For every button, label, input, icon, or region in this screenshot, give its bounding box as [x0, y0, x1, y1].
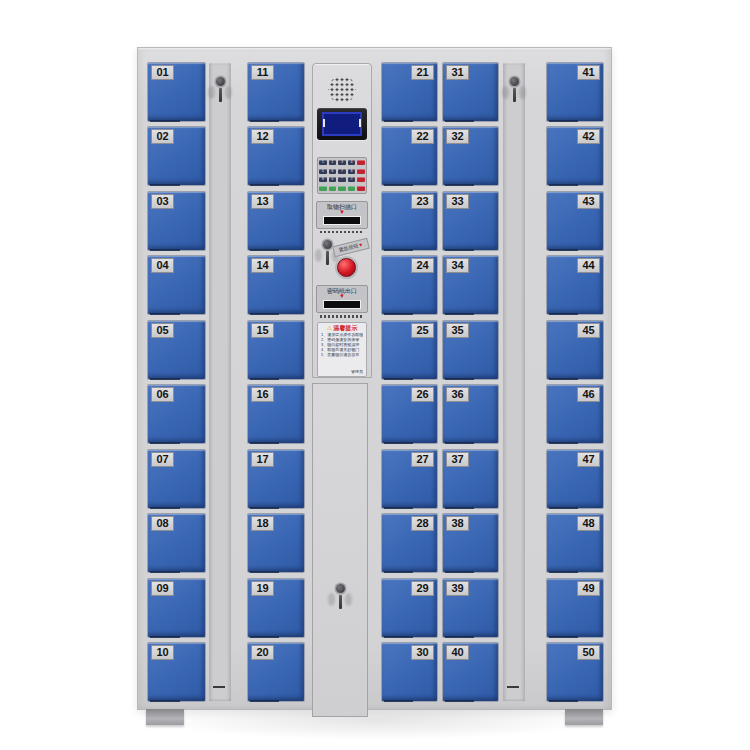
locker-door-42[interactable]: 42	[547, 127, 603, 185]
locker-door-24[interactable]: 24	[382, 256, 437, 314]
keypad-key[interactable]: 5	[319, 169, 327, 174]
control-panel: 1234567890*# 取物扫描口 ▼ 紧急按钮▼ 密码纸出口 ▼	[312, 63, 372, 378]
door-number-plate: 40	[446, 645, 469, 660]
door-number-plate: 49	[577, 581, 600, 596]
door-number-plate: 06	[151, 387, 174, 402]
keypad-key[interactable]: 3	[338, 160, 346, 165]
strip-vent-slot	[507, 686, 519, 688]
door-number-plate: 48	[577, 516, 600, 531]
door-number-plate: 20	[251, 645, 274, 660]
keypad-key[interactable]: 1	[319, 160, 327, 165]
door-number-plate: 21	[411, 65, 434, 80]
locker-door-34[interactable]: 34	[443, 256, 498, 314]
locker-door-40[interactable]: 40	[443, 643, 498, 701]
door-number-plate: 19	[251, 581, 274, 596]
door-number-plate: 05	[151, 323, 174, 338]
emergency-button-label: 紧急按钮▼	[332, 238, 370, 257]
keypad-key[interactable]: 4	[348, 160, 356, 165]
door-number-plate: 14	[251, 258, 274, 273]
locker-door-13[interactable]: 13	[248, 192, 304, 250]
locker-door-07[interactable]: 07	[148, 450, 205, 508]
door-number-plate: 47	[577, 452, 600, 467]
speaker-icon	[328, 76, 356, 103]
notice-line: 5、贵重物品请勿存放	[321, 352, 363, 357]
locker-door-12[interactable]: 12	[248, 127, 304, 185]
lcd-display	[317, 108, 367, 140]
locker-column-1: 01020304050607080910	[148, 63, 205, 701]
locker-door-17[interactable]: 17	[248, 450, 304, 508]
keypad-function-key[interactable]	[357, 160, 365, 165]
locker-door-25[interactable]: 25	[382, 321, 437, 379]
keypad-key[interactable]: 6	[329, 169, 337, 174]
locker-cabinet: 01020304050607080910 1112131415161718192…	[137, 47, 612, 710]
keypad-key[interactable]: *	[338, 177, 346, 182]
password-slot-panel: 密码纸出口 ▼	[316, 285, 368, 313]
keypad-key[interactable]	[319, 186, 327, 191]
locker-door-47[interactable]: 47	[547, 450, 603, 508]
locker-door-39[interactable]: 39	[443, 579, 498, 637]
door-number-plate: 25	[411, 323, 434, 338]
lower-door-keyhole-with-key-icon[interactable]	[332, 584, 348, 616]
warning-triangle-icon: ⚠	[327, 325, 332, 332]
door-number-plate: 03	[151, 194, 174, 209]
locker-door-29[interactable]: 29	[382, 579, 437, 637]
notice-label: ⚠ 温馨提示 1、请按提示操作存取物品2、密码条请妥善保管3、物品超时将被清理4…	[317, 322, 367, 377]
keypad-key[interactable]: 7	[338, 169, 346, 174]
notice-header: ⚠ 温馨提示	[321, 325, 363, 332]
locker-door-28[interactable]: 28	[382, 514, 437, 572]
keypad-key[interactable]: 8	[348, 169, 356, 174]
locker-door-08[interactable]: 08	[148, 514, 205, 572]
locker-door-05[interactable]: 05	[148, 321, 205, 379]
door-number-plate: 22	[411, 129, 434, 144]
locker-door-14[interactable]: 14	[248, 256, 304, 314]
door-number-plate: 11	[251, 65, 274, 80]
down-arrow-icon: ▼	[339, 294, 345, 299]
down-arrow-icon: ▼	[339, 210, 345, 215]
keyhole-with-key-icon[interactable]	[506, 77, 522, 109]
keypad-key[interactable]	[338, 186, 346, 191]
locker-door-36[interactable]: 36	[443, 385, 498, 443]
side-lock-panel-left	[209, 63, 231, 701]
locker-door-23[interactable]: 23	[382, 192, 437, 250]
locker-door-41[interactable]: 41	[547, 63, 603, 121]
door-number-plate: 04	[151, 258, 174, 273]
locker-door-10[interactable]: 10	[148, 643, 205, 701]
lock-and-button-row: 紧急按钮▼	[313, 239, 371, 278]
vent-dots	[320, 315, 364, 318]
door-number-plate: 15	[251, 323, 274, 338]
strip-vent-slot	[213, 686, 225, 688]
door-number-plate: 02	[151, 129, 174, 144]
locker-door-19[interactable]: 19	[248, 579, 304, 637]
locker-door-20[interactable]: 20	[248, 643, 304, 701]
locker-door-35[interactable]: 35	[443, 321, 498, 379]
door-number-plate: 28	[411, 516, 434, 531]
locker-door-06[interactable]: 06	[148, 385, 205, 443]
keypad-key[interactable]: 2	[329, 160, 337, 165]
locker-door-02[interactable]: 02	[148, 127, 205, 185]
barcode-scan-slot[interactable]	[323, 216, 361, 225]
keypad-function-key[interactable]	[357, 186, 365, 191]
locker-product-photo: 01020304050607080910 1112131415161718192…	[0, 0, 750, 750]
locker-door-09[interactable]: 09	[148, 579, 205, 637]
door-number-plate: 08	[151, 516, 174, 531]
locker-door-48[interactable]: 48	[547, 514, 603, 572]
door-number-plate: 16	[251, 387, 274, 402]
door-number-plate: 44	[577, 258, 600, 273]
emergency-label-text: 紧急按钮	[338, 243, 359, 254]
door-number-plate: 12	[251, 129, 274, 144]
notice-signature: 管理员	[321, 369, 363, 374]
door-number-plate: 32	[446, 129, 469, 144]
locker-door-49[interactable]: 49	[547, 579, 603, 637]
locker-door-01[interactable]: 01	[148, 63, 205, 121]
door-number-plate: 17	[251, 452, 274, 467]
keypad-function-key[interactable]	[357, 169, 365, 174]
door-number-plate: 46	[577, 387, 600, 402]
door-number-plate: 31	[446, 65, 469, 80]
locker-door-27[interactable]: 27	[382, 450, 437, 508]
door-number-plate: 07	[151, 452, 174, 467]
lcd-screen	[322, 112, 362, 136]
locker-door-03[interactable]: 03	[148, 192, 205, 250]
locker-door-11[interactable]: 11	[248, 63, 304, 121]
locker-column-5: 41424344454647484950	[547, 63, 603, 701]
door-number-plate: 34	[446, 258, 469, 273]
notice-lines: 1、请按提示操作存取物品2、密码条请妥善保管3、物品超时将被清理4、取物后请关好…	[321, 332, 363, 357]
locker-door-31[interactable]: 31	[443, 63, 498, 121]
locker-door-16[interactable]: 16	[248, 385, 304, 443]
door-number-plate: 18	[251, 516, 274, 531]
keypad-key[interactable]	[348, 186, 356, 191]
door-number-plate: 37	[446, 452, 469, 467]
locker-column-3: 21222324252627282930	[382, 63, 437, 701]
door-number-plate: 39	[446, 581, 469, 596]
vent-dots	[320, 231, 364, 234]
locker-door-43[interactable]: 43	[547, 192, 603, 250]
scan-slot-panel: 取物扫描口 ▼	[316, 201, 368, 229]
notice-title: 温馨提示	[333, 325, 357, 332]
keypad-key[interactable]: 0	[329, 177, 337, 182]
keypad-key[interactable]	[329, 186, 337, 191]
door-number-plate: 10	[151, 645, 174, 660]
locker-column-4: 31323334353637383940	[443, 63, 498, 701]
control-column: 1234567890*# 取物扫描口 ▼ 紧急按钮▼ 密码纸出口 ▼	[311, 63, 371, 701]
down-arrow-icon: ▼	[357, 242, 363, 249]
side-lock-panel-right	[503, 63, 525, 701]
door-number-plate: 35	[446, 323, 469, 338]
cabinet-foot-left	[146, 709, 184, 725]
locker-door-18[interactable]: 18	[248, 514, 304, 572]
cabinet-foot-right	[565, 709, 603, 725]
keyhole-with-key-icon[interactable]	[212, 77, 228, 109]
door-number-plate: 50	[577, 645, 600, 660]
door-number-plate: 23	[411, 194, 434, 209]
password-ticket-slot[interactable]	[323, 300, 361, 309]
locker-door-21[interactable]: 21	[382, 63, 437, 121]
door-number-plate: 36	[446, 387, 469, 402]
locker-door-33[interactable]: 33	[443, 192, 498, 250]
door-number-plate: 24	[411, 258, 434, 273]
door-number-plate: 43	[577, 194, 600, 209]
locker-door-15[interactable]: 15	[248, 321, 304, 379]
door-number-plate: 26	[411, 387, 434, 402]
locker-door-32[interactable]: 32	[443, 127, 498, 185]
locker-column-2: 11121314151617181920	[248, 63, 304, 701]
emergency-button[interactable]	[337, 258, 356, 277]
locker-door-37[interactable]: 37	[443, 450, 498, 508]
door-number-plate: 09	[151, 581, 174, 596]
locker-door-04[interactable]: 04	[148, 256, 205, 314]
locker-door-30[interactable]: 30	[382, 643, 437, 701]
keypad-key[interactable]: #	[348, 177, 356, 182]
door-number-plate: 45	[577, 323, 600, 338]
door-number-plate: 33	[446, 194, 469, 209]
locker-door-50[interactable]: 50	[547, 643, 603, 701]
locker-door-26[interactable]: 26	[382, 385, 437, 443]
door-number-plate: 38	[446, 516, 469, 531]
locker-door-45[interactable]: 45	[547, 321, 603, 379]
keypad-function-key[interactable]	[357, 177, 365, 182]
door-number-plate: 30	[411, 645, 434, 660]
door-number-plate: 42	[577, 129, 600, 144]
door-number-plate: 01	[151, 65, 174, 80]
keypad-key[interactable]: 9	[319, 177, 327, 182]
door-number-plate: 41	[577, 65, 600, 80]
keypad[interactable]: 1234567890*#	[317, 157, 367, 193]
locker-door-44[interactable]: 44	[547, 256, 603, 314]
locker-door-38[interactable]: 38	[443, 514, 498, 572]
door-number-plate: 13	[251, 194, 274, 209]
locker-door-22[interactable]: 22	[382, 127, 437, 185]
control-lower-door[interactable]	[312, 383, 368, 717]
door-number-plate: 27	[411, 452, 434, 467]
door-number-plate: 29	[411, 581, 434, 596]
locker-door-46[interactable]: 46	[547, 385, 603, 443]
